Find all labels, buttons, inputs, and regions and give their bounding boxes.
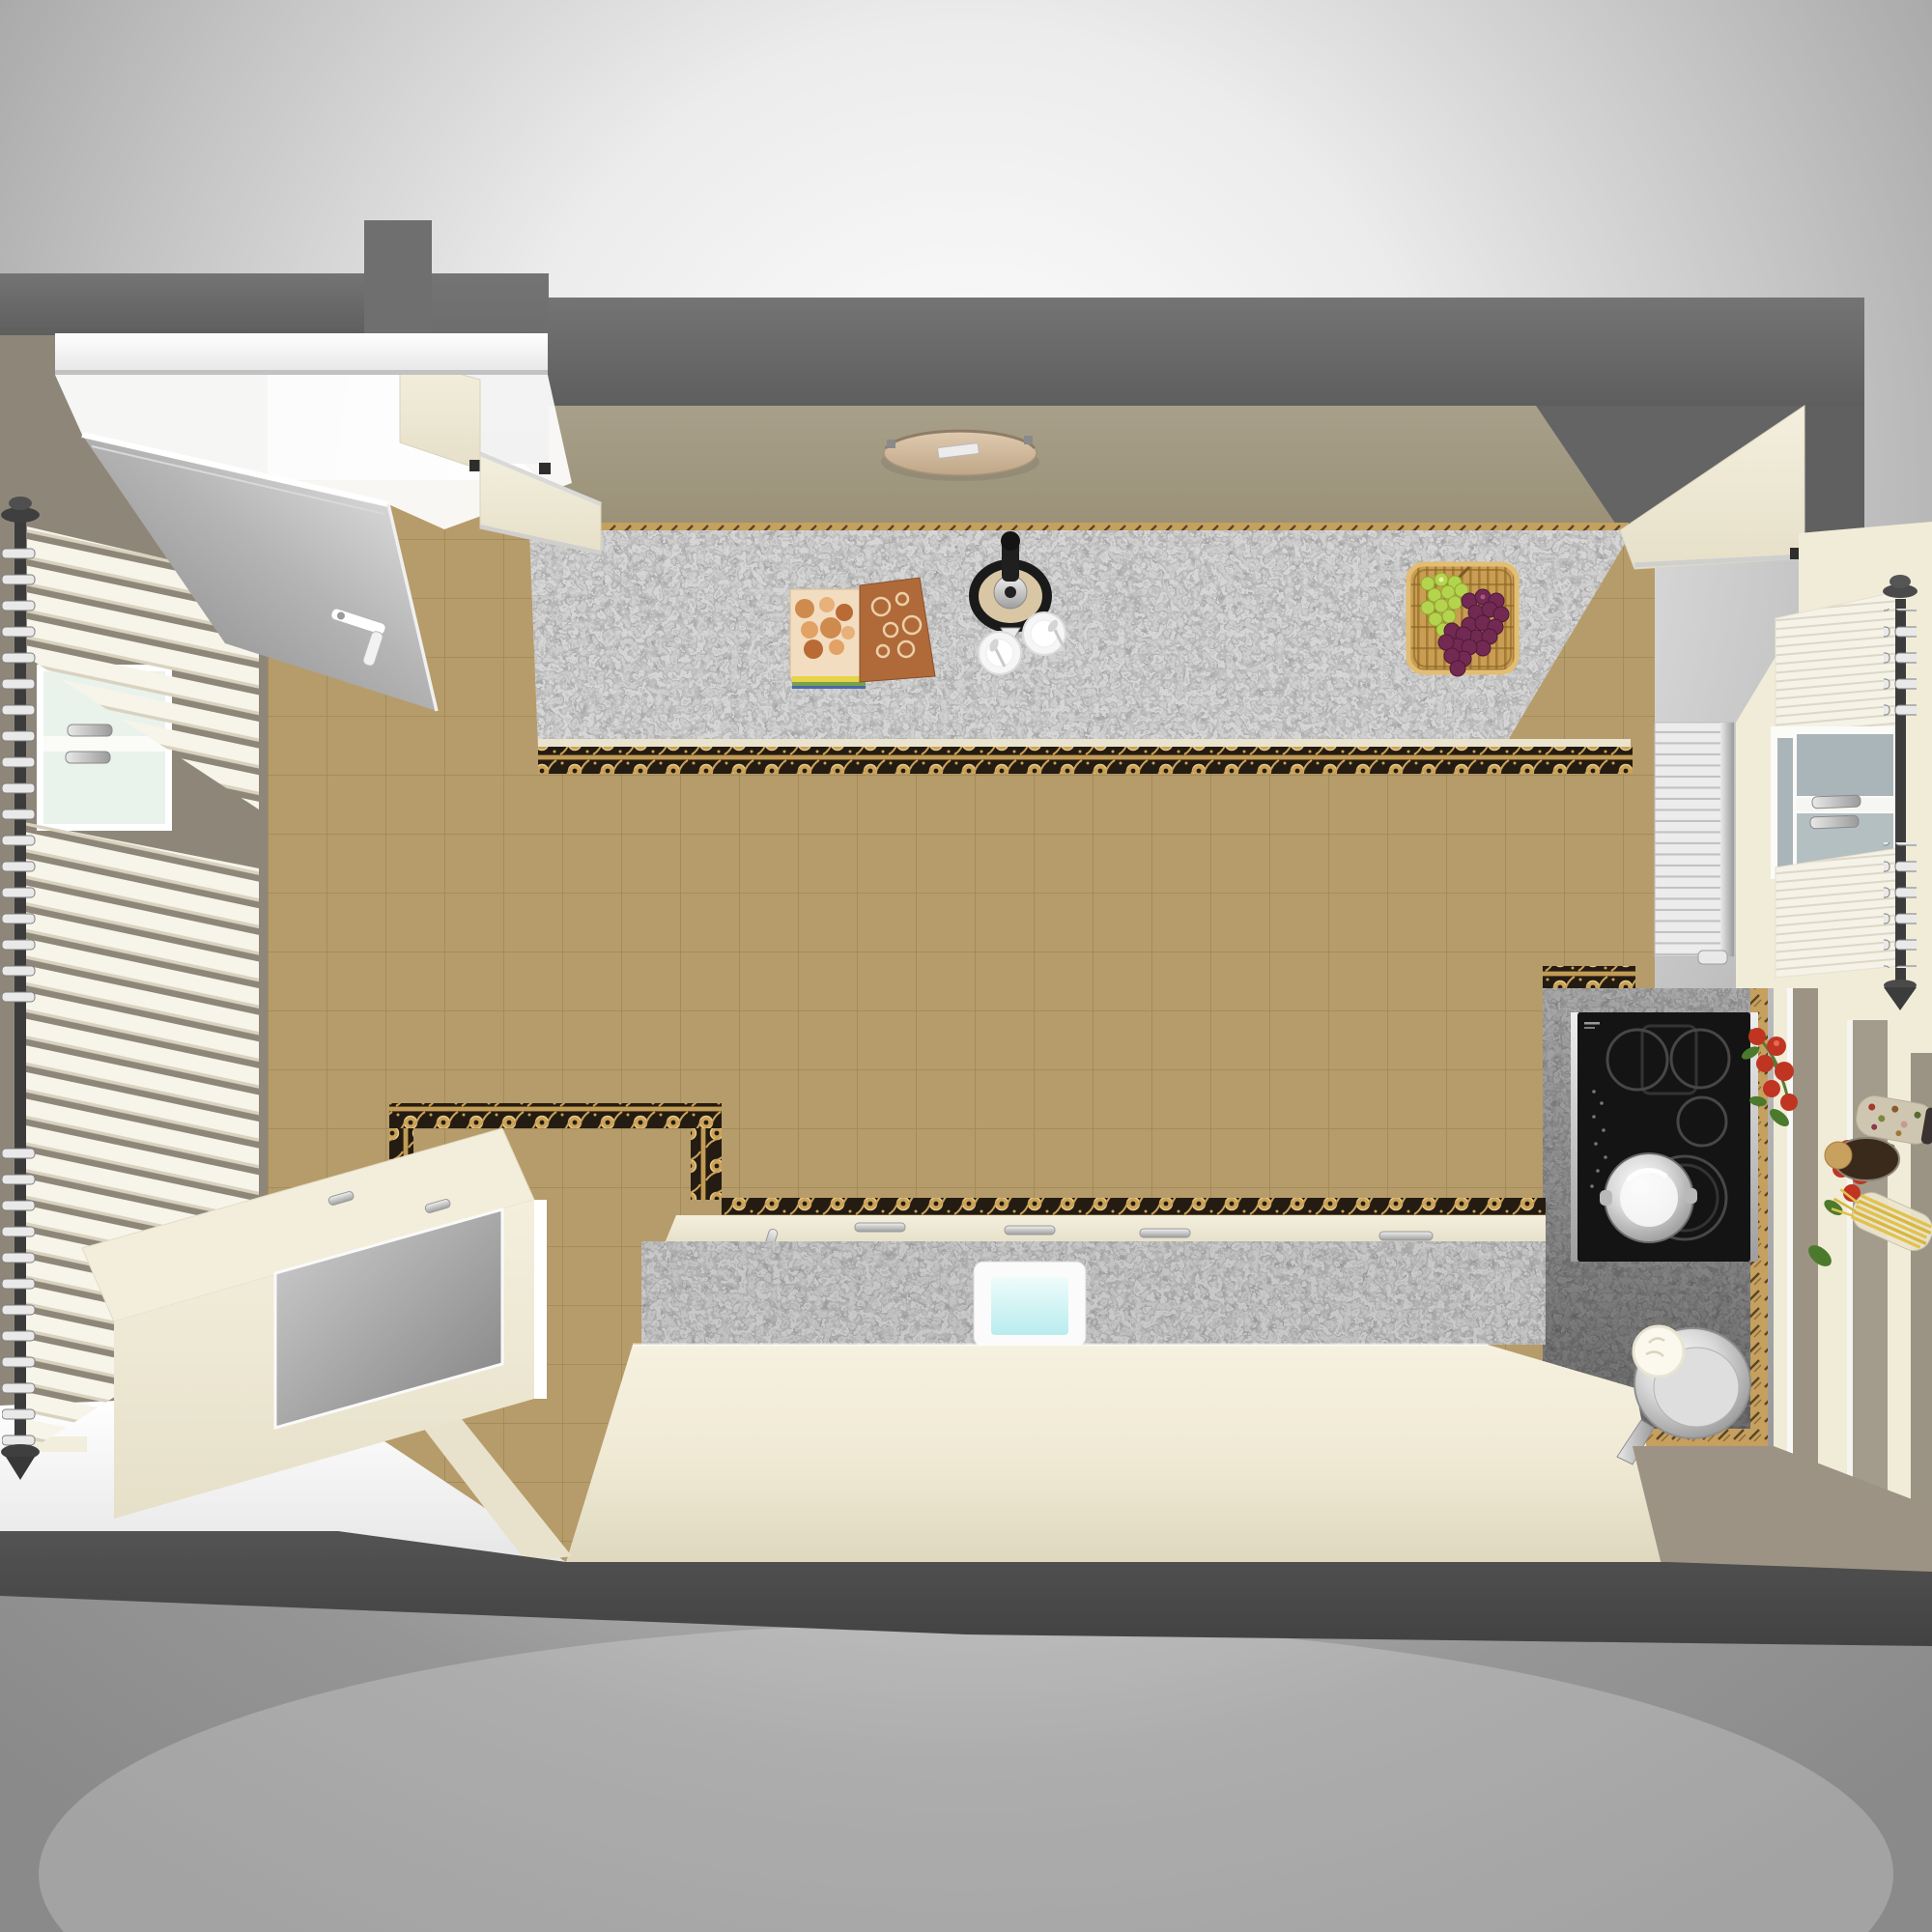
right-window-pane-top [1797, 734, 1893, 796]
cooktop[interactable] [1571, 1012, 1758, 1262]
window-handle[interactable] [1812, 795, 1861, 809]
sink[interactable] [974, 1262, 1086, 1347]
pot-handle-left [1600, 1190, 1612, 1206]
left-window-mullion [43, 736, 165, 752]
cabinet-edge-highlight [1847, 1020, 1853, 1536]
wall-segment-left [0, 273, 364, 335]
ceiling-band [483, 406, 1620, 530]
kitchen-render [0, 0, 1932, 1932]
window-handle[interactable] [66, 752, 110, 763]
grape-highlight [1439, 578, 1444, 582]
cabinet-gap [1793, 988, 1818, 1492]
scale-hub [1005, 586, 1016, 598]
rod-beads [2, 537, 39, 1017]
sink-counter-granite[interactable] [641, 1241, 1546, 1345]
kitchen-island[interactable] [566, 1345, 1668, 1562]
window-handle[interactable] [68, 724, 112, 736]
cookbook-pages-yellow [792, 676, 866, 682]
ceiling-lamp[interactable] [881, 431, 1039, 481]
scale-knob [1001, 531, 1020, 551]
door-frame-band [55, 333, 548, 374]
decorative-border-corner [691, 1128, 722, 1200]
rod-beads [1884, 609, 1917, 724]
sink-basin[interactable] [991, 1277, 1068, 1335]
decorative-border-right [1543, 966, 1635, 988]
rod-finial-top-cap [9, 497, 32, 510]
wall-segment-right [1804, 406, 1864, 541]
grape-highlight [1481, 595, 1486, 600]
cookbook[interactable] [790, 578, 935, 689]
wall-segment-main [549, 298, 1864, 406]
lamp-clip-right [1024, 436, 1033, 444]
cookbook-pages-green [792, 682, 866, 686]
pot-handle-right [1685, 1188, 1697, 1204]
right-window-assembly[interactable] [1771, 575, 1918, 1010]
island-front[interactable] [566, 1345, 1668, 1562]
right-pleated-blind-bottom[interactable] [1776, 848, 1899, 978]
drawer-handle[interactable] [1379, 1232, 1433, 1240]
pan-cream [1634, 1326, 1684, 1377]
fruit-basket[interactable] [1408, 564, 1517, 676]
tomato-highlight [1774, 1040, 1779, 1046]
lamp-clip-left [887, 440, 895, 448]
bench-side-edge [534, 1200, 547, 1399]
radiator-edge [1720, 723, 1734, 956]
kitchen-plan-svg [0, 0, 1932, 1932]
door-frame-line [55, 370, 548, 375]
wall-pillar [364, 220, 432, 335]
backsplash-border [529, 523, 1629, 530]
rod-finial-top-cap [1889, 575, 1911, 588]
cooktop-trim-left [1571, 1012, 1578, 1262]
panel-corner-block [469, 460, 481, 471]
cork-lid [1825, 1142, 1852, 1169]
right-window-pane-side [1777, 738, 1793, 869]
drawer-handle[interactable] [1005, 1226, 1055, 1235]
panel-corner-block [539, 463, 551, 474]
decorative-border-left [389, 1103, 722, 1128]
left-curtain-rod[interactable] [1, 497, 40, 1480]
rod-beads [2, 1140, 39, 1449]
counter-edge-trim [538, 739, 1631, 748]
decorative-border-top [538, 747, 1633, 774]
base-counter[interactable] [641, 1215, 1546, 1347]
drawer-handle[interactable] [855, 1223, 905, 1232]
drawer-handle[interactable] [1140, 1229, 1190, 1237]
plate-center [986, 639, 1013, 667]
cookbook-pages-blue [792, 686, 866, 689]
window-handle[interactable] [1810, 815, 1859, 829]
rod-beads [1884, 842, 1917, 968]
radiator-valve[interactable] [1698, 951, 1727, 964]
right-radiator[interactable] [1655, 723, 1734, 964]
